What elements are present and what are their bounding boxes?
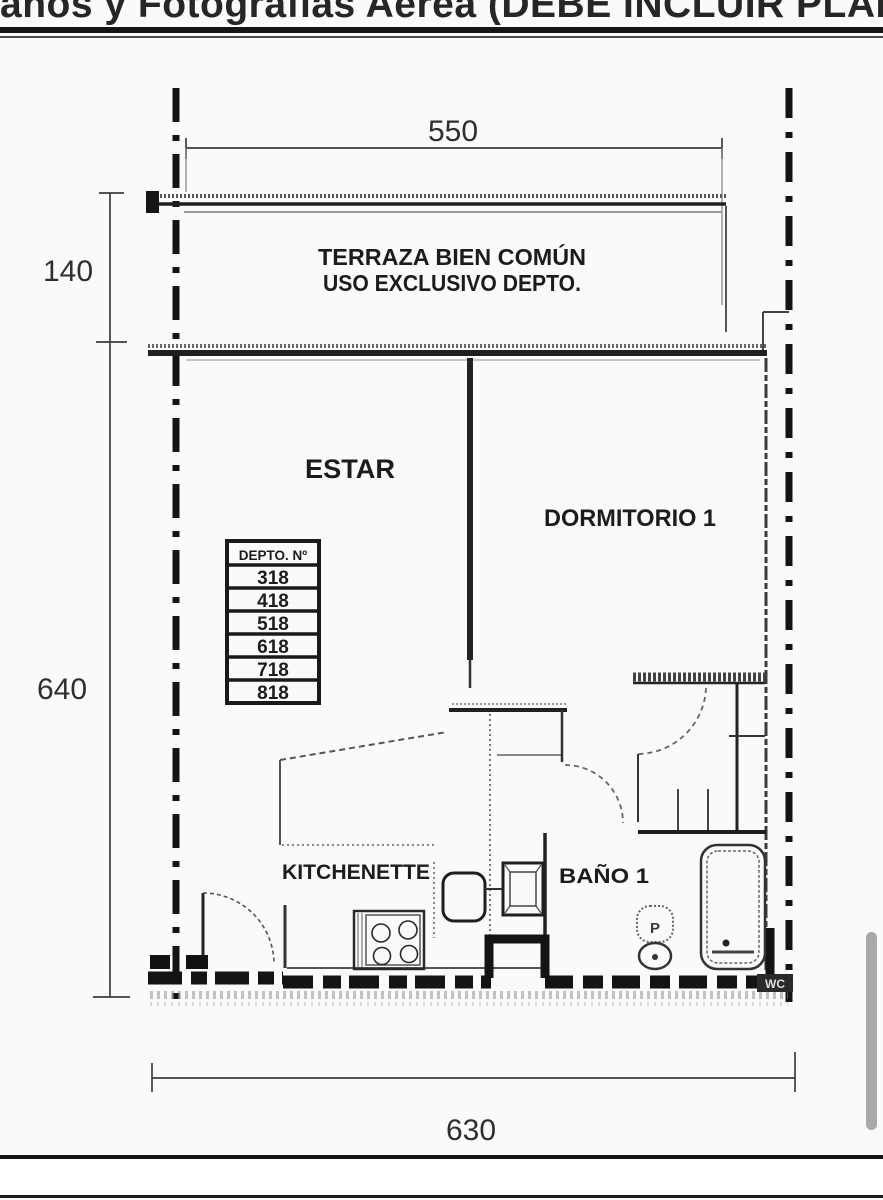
kitchen-counter-outline xyxy=(280,732,543,968)
depto-table-row: 718 xyxy=(257,660,289,681)
floor-plan-drawing: 550 140 640 630 xyxy=(0,0,883,1200)
scrollbar-thumb[interactable] xyxy=(866,932,877,1130)
toilet-icon xyxy=(637,906,673,969)
room-label-dormitorio: DORMITORIO 1 xyxy=(544,505,716,532)
kitchen-sink-icon xyxy=(443,873,503,921)
dimension-left-vertical xyxy=(93,193,130,997)
wall-terraza-right xyxy=(726,206,789,350)
door-arc-closet xyxy=(638,688,706,754)
wall-apartment-bottom xyxy=(148,928,793,1004)
room-label-terraza-line2: USO EXCLUSIVO DEPTO. xyxy=(323,270,581,296)
dim-label-630: 630 xyxy=(446,1114,496,1147)
dimension-apartment-width xyxy=(152,1052,795,1092)
depto-table-row: 818 xyxy=(257,683,289,704)
room-label-kitchenette: KITCHENETTE xyxy=(282,861,430,884)
depto-table: DEPTO. Nº 318 418 518 618 718 818 xyxy=(227,541,319,704)
room-label-estar: ESTAR xyxy=(305,454,395,484)
entrance-door xyxy=(150,893,274,969)
room-label-bano: BAÑO 1 xyxy=(559,865,649,888)
closet-dormitorio xyxy=(633,677,765,830)
bottom-white-band xyxy=(0,1159,883,1195)
wall-apartment-top xyxy=(148,346,768,360)
toilet-mark: P xyxy=(650,920,660,937)
depto-table-row: 318 xyxy=(257,568,289,589)
laundry-sink-icon xyxy=(503,863,543,915)
dim-label-640: 640 xyxy=(37,673,87,706)
dim-label-140: 140 xyxy=(43,255,93,288)
screenshot-root: anos y Fotografías Aérea (DEBE INCLUIR P… xyxy=(0,0,883,1200)
depto-table-row: 518 xyxy=(257,614,289,635)
depto-table-header: DEPTO. Nº xyxy=(239,548,308,563)
bottom-divider-bottom xyxy=(0,1195,883,1198)
bathtub-icon xyxy=(701,845,765,969)
stove-icon xyxy=(354,911,424,969)
room-label-terraza-line1: TERRAZA BIEN COMÚN xyxy=(318,243,586,270)
dim-label-550: 550 xyxy=(428,115,478,148)
wall-terraza-top xyxy=(146,191,727,213)
door-arc-entrance xyxy=(203,893,274,963)
depto-table-row: 418 xyxy=(257,591,289,612)
door-arc-hall xyxy=(565,765,623,823)
depto-table-row: 618 xyxy=(257,637,289,658)
wc-label: WC xyxy=(765,977,785,991)
